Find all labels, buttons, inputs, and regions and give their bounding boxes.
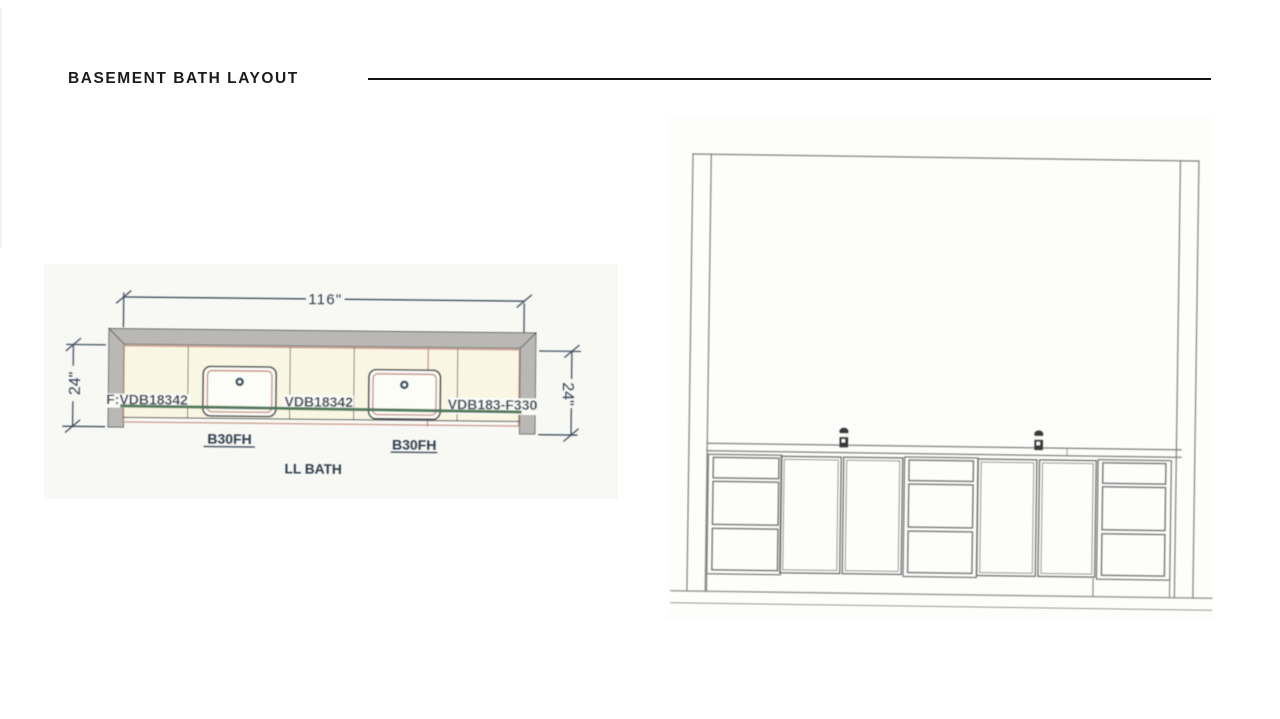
svg-text:VDB183-F330: VDB183-F330 <box>448 396 538 413</box>
svg-text:LL BATH: LL BATH <box>284 462 341 478</box>
svg-text:VDB18342: VDB18342 <box>284 393 353 410</box>
svg-text:F:VDB18342: F:VDB18342 <box>106 391 188 408</box>
svg-text:24": 24" <box>67 372 84 396</box>
svg-text:B30FH: B30FH <box>392 436 437 452</box>
svg-text:B30FH: B30FH <box>207 431 252 447</box>
svg-text:116": 116" <box>308 291 342 308</box>
svg-text:24": 24" <box>559 382 576 406</box>
